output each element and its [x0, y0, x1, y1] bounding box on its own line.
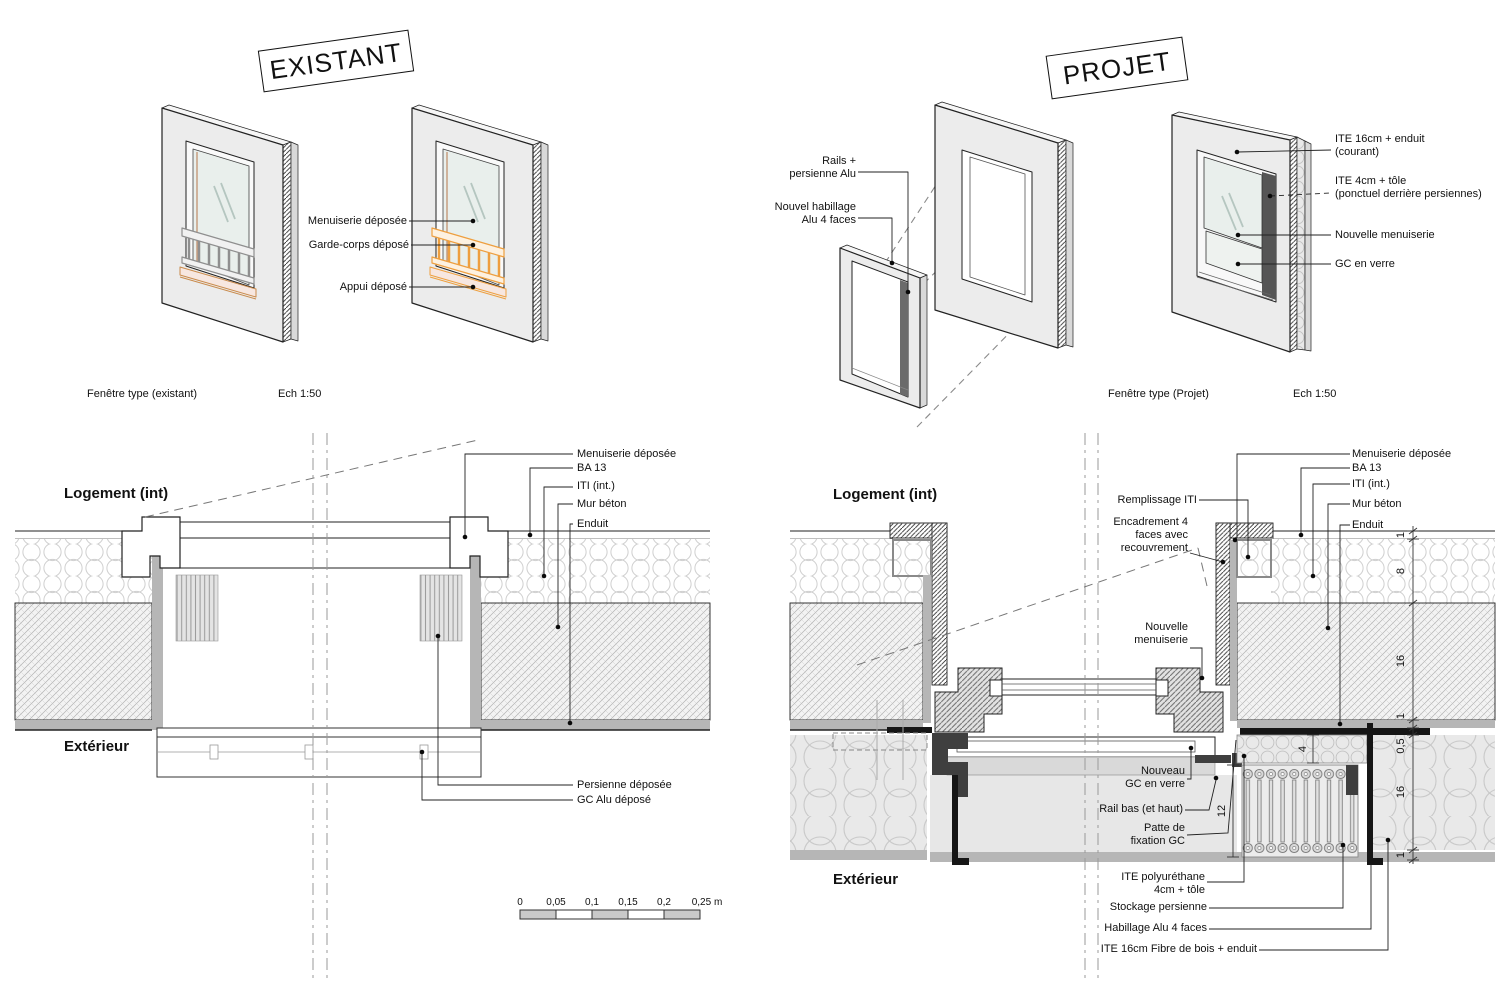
ite-fibre-right: [1373, 735, 1495, 850]
label-ba13-projet: BA 13: [1352, 462, 1381, 475]
remplissage-iti-left: [893, 540, 931, 576]
label-mur-beton: Mur béton: [577, 498, 627, 511]
rail-dark-band: [900, 280, 908, 397]
label-appui-depose: Appui déposé: [322, 281, 407, 294]
enduit-strip: [481, 720, 710, 730]
label-iti-int-projet: ITI (int.): [1352, 478, 1390, 491]
patte-fixation-right: [1195, 755, 1231, 763]
label-menuiserie-deposee: Menuiserie déposée: [292, 215, 407, 228]
tole-dark-band: [1262, 172, 1276, 300]
scalebar-0: 0: [503, 897, 537, 908]
projet-scale: Ech 1:50: [1293, 388, 1336, 400]
glass-gc: [957, 741, 1195, 752]
iti-insulation: [481, 539, 710, 603]
architectural-drawing-page: 1 8 16 1 0,5 16 1 4 12: [0, 0, 1500, 990]
stockage-persienne-box: [1242, 765, 1358, 857]
label-iti-int: ITI (int.): [577, 480, 615, 493]
label-gc-alu-depose: GC Alu déposé: [577, 794, 651, 807]
label-enduit-projet: Enduit: [1352, 519, 1383, 532]
label-encadrement: Encadrement 4 faces avec recouvrement: [1098, 516, 1188, 555]
scalebar-005: 0,05: [539, 897, 573, 908]
label-garde-corps-depose: Garde-corps déposé: [292, 239, 409, 252]
scalebar-02: 0,2: [647, 897, 681, 908]
menuiserie-plan: [122, 517, 508, 577]
label-persienne-deposee: Persienne déposée: [577, 779, 672, 792]
removed-window-ref: [145, 440, 478, 517]
label-rails-persienne: Rails + persienne Alu: [770, 155, 856, 181]
wall-edge-hatch: [533, 142, 541, 342]
drawing-canvas: 1 8 16 1 0,5 16 1 4 12: [0, 0, 1500, 990]
label-menuiserie-deposee-plan: Menuiserie déposée: [577, 448, 676, 461]
existant-window-left: [162, 105, 298, 342]
tableau-strip: [470, 538, 481, 730]
dim-05: 0,5: [1395, 738, 1407, 753]
scalebar-025m: 0,25 m: [685, 897, 729, 908]
habillage-frame: [840, 245, 927, 408]
room-label-exterieur: Extérieur: [64, 738, 129, 755]
dim-16: 16: [1395, 655, 1407, 667]
label-ite4-tole: ITE 4cm + tôle (ponctuel derrière persie…: [1335, 175, 1500, 201]
room-label-logement: Logement (int): [64, 485, 168, 502]
projet-wall-opening: [935, 102, 1073, 348]
label-nouvel-habillage: Nouvel habillage Alu 4 faces: [756, 201, 856, 227]
room-label-exterieur-projet: Extérieur: [833, 871, 898, 888]
axis-lines: [313, 433, 327, 978]
dim-4: 4: [1297, 746, 1309, 752]
label-remplissage-iti: Remplissage ITI: [1100, 494, 1197, 507]
concrete-wall: [15, 603, 152, 720]
label-nouveau-gc-verre: Nouveau GC en verre: [1095, 765, 1185, 791]
remplissage-iti-right: [1237, 540, 1271, 577]
label-nouvelle-menuiserie-plan: Nouvelle menuiserie: [1108, 621, 1188, 647]
label-ite-fibre-bois: ITE 16cm Fibre de bois + enduit: [1057, 943, 1257, 956]
scalebar-01: 0,1: [575, 897, 609, 908]
existant-scale: Ech 1:50: [278, 388, 321, 400]
label-habillage-alu: Habillage Alu 4 faces: [1067, 922, 1207, 935]
label-enduit: Enduit: [577, 518, 608, 531]
existant-window-right: [412, 105, 548, 342]
projet-caption: Fenêtre type (Projet): [1108, 388, 1209, 400]
enduit-exterior: [930, 852, 1495, 862]
wall-edge-hatch: [283, 142, 291, 342]
persienne-right: [420, 575, 462, 641]
scalebar-015: 0,15: [611, 897, 645, 908]
scale-bar: [520, 910, 700, 919]
ite-left: [790, 735, 927, 850]
gc-alu-plan: [157, 728, 481, 777]
iti-insulation: [1271, 539, 1495, 603]
label-nouvelle-menuiserie: Nouvelle menuiserie: [1335, 229, 1475, 242]
enduit-strip: [15, 720, 152, 730]
dim-8: 8: [1395, 568, 1407, 574]
dim-16b: 16: [1395, 786, 1407, 798]
label-ite-polyurethane: ITE polyuréthane 4cm + tôle: [1085, 871, 1205, 897]
label-rail-bas: Rail bas (et haut): [1063, 803, 1183, 816]
enduit-strip: [1237, 720, 1495, 728]
dim-12: 12: [1216, 805, 1228, 817]
label-ba13: BA 13: [577, 462, 606, 475]
projet-title: PROJET: [1061, 45, 1173, 91]
ite-edge: [1297, 137, 1305, 350]
dim-1: 1: [1395, 532, 1407, 538]
label-gc-en-verre: GC en verre: [1335, 258, 1435, 271]
dim-1c: 1: [1395, 852, 1407, 858]
nouvelle-menuiserie-plan: [935, 668, 1223, 732]
existant-caption: Fenêtre type (existant): [87, 388, 197, 400]
room-label-logement-projet: Logement (int): [833, 486, 937, 503]
concrete-wall: [481, 603, 710, 720]
label-menuiserie-deposee-projet: Menuiserie déposée: [1352, 448, 1451, 461]
dim-1b: 1: [1395, 713, 1407, 719]
right-wall: [1237, 531, 1495, 735]
projet-window-finished: [1172, 112, 1311, 352]
tole-strip: [1240, 728, 1430, 735]
concrete-wall: [1237, 603, 1495, 720]
label-stockage-persienne: Stockage persienne: [1087, 901, 1207, 914]
label-patte-fixation: Patte de fixation GC: [1105, 822, 1185, 848]
label-ite16-enduit: ITE 16cm + enduit (courant): [1335, 133, 1465, 159]
persienne-left: [176, 575, 218, 641]
label-mur-beton-projet: Mur béton: [1352, 498, 1402, 511]
projet-axon-group: [840, 102, 1331, 427]
